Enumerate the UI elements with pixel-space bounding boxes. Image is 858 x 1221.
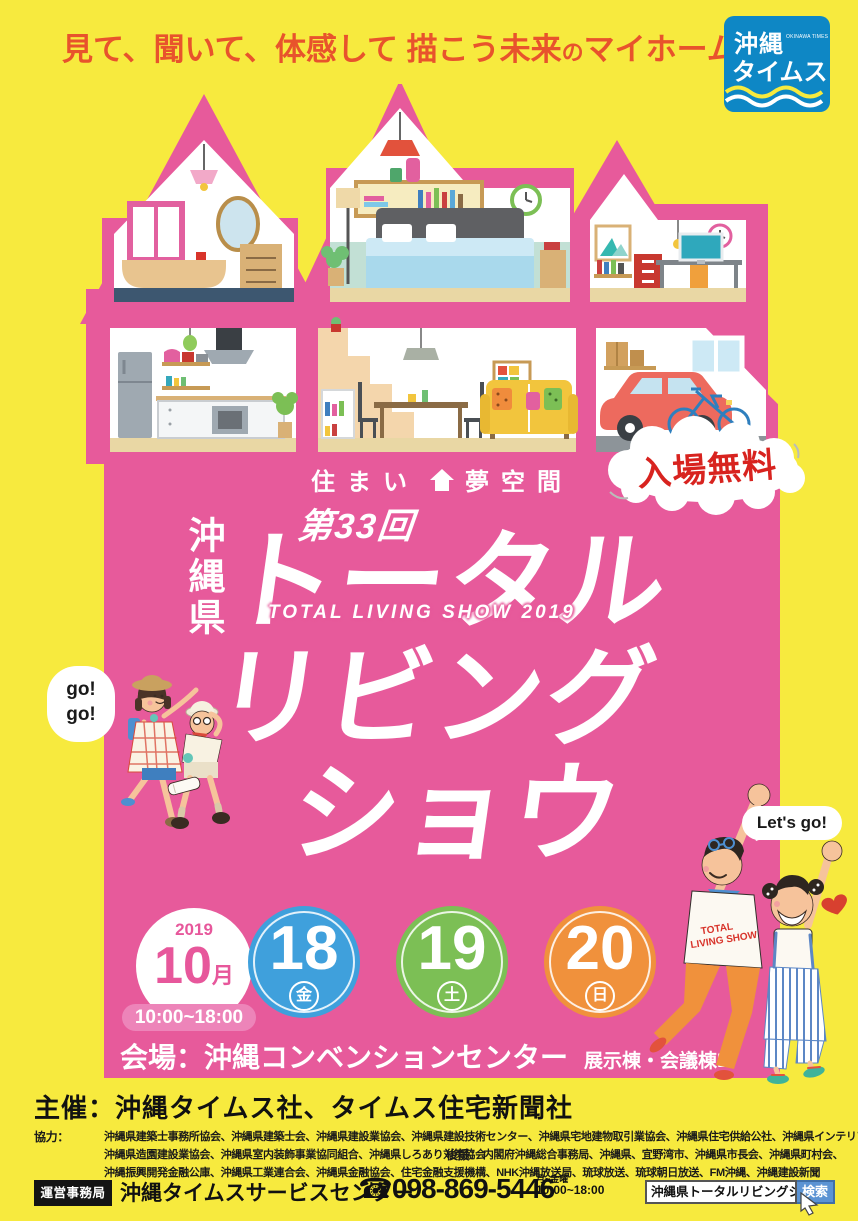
range-hood-icon [216,328,242,350]
venue-name: 会場：沖縄コンベンションセンター [120,1036,568,1076]
bedroom [321,108,570,302]
month-number: 10 [154,937,212,995]
dining-table [374,402,468,408]
weekday-label: 日 [585,981,615,1011]
cooperation-line2: 沖縄県造園建設業協会、沖縄県室内装飾事業協同組合、沖縄県しろあり対策協会 [104,1146,486,1162]
living-floor [318,438,576,452]
phone-number: ☎098-869-5446 [358,1172,554,1205]
pants [654,963,720,1045]
weekday-label: 土 [437,981,467,1011]
month-unit: 月 [212,963,234,988]
headline-no: の [562,40,584,65]
day-badge-saturday: 19 土 [396,906,508,1018]
logo-line2: タイムス [732,52,828,87]
pendant-lamp-icon [403,348,439,360]
poster: 見て、聞いて、体感して 描こう未来のマイホーム 沖縄 OKINAWA TIMES… [0,0,858,1221]
go-line2: go! [47,703,115,728]
bedroom-floor [330,288,570,302]
kitchen [110,328,298,452]
organizer-line: 主催：沖縄タイムス社、タイムス住宅新聞社 [34,1088,573,1125]
vase-icon [406,158,420,182]
bathtub-icon [122,260,226,288]
headline-part2: マイホーム [584,32,738,67]
mirror-icon [218,198,258,250]
cooperation-label: 協力： [34,1128,69,1145]
house-illustration [78,84,778,464]
logo-subtext: OKINAWA TIMES [786,34,828,40]
nightstand [540,250,566,288]
heart-icon [820,893,850,918]
pot-icon [164,349,180,362]
towel [690,265,708,288]
monitor-icon [680,234,722,260]
study-room [590,174,746,302]
search-input[interactable]: 沖縄県トータルリビングショウ2019 [645,1180,797,1204]
floor-lamp [336,188,360,208]
hours-badge: 10:00~18:00 [122,1004,256,1031]
support-label: 後援： [446,1146,481,1163]
cushion [492,388,512,410]
title-line2: リビング [208,644,663,752]
weekday-label: 金 [289,981,319,1011]
study-floor [590,288,746,302]
title-line3: ショウ [284,760,629,868]
day-badge-friday: 18 金 [248,906,360,1018]
free-admission-badge: 入場無料 [596,414,818,518]
cushion [526,392,540,410]
go-line1: go! [47,678,115,703]
tagline-left: 住まい [311,462,419,497]
kitchen-floor [110,438,296,452]
go-go-bubble: go! go! [47,666,115,742]
striped-overalls [764,967,826,1041]
bathroom [114,140,294,302]
man-fist [748,784,770,806]
support-line1: 内閣府沖縄総合事務局、沖縄県、宜野湾市、沖縄県市長会、沖縄県町村会、 [483,1146,843,1163]
girl-fist [822,841,842,861]
pillow [426,224,456,242]
pillow [382,224,412,242]
lets-go-bubble: Let's go! [742,806,842,840]
tagline-right: 夢空間 [465,462,573,497]
box-icon [630,350,644,366]
office-label-badge: 運営事務局 [34,1180,112,1206]
living-room [318,317,578,452]
bathroom-floor [114,288,294,302]
phone-hours-time: 10:00~18:00 [536,1184,604,1198]
support-group: 後援： 内閣府沖縄総合事務局、沖縄県、宜野湾市、沖縄県市長会、沖縄県町村会、 [446,1146,843,1163]
cursor-icon [800,1192,820,1216]
title-subtitle-en: TOTAL LIVING SHOW 2019 [268,602,576,624]
headline: 見て、聞いて、体感して 描こう未来のマイホーム [62,24,738,69]
home-icon [429,468,455,492]
cooperation-line1: 沖縄県建築士事務所協会、沖縄県建築士会、沖縄県建設業協会、沖縄県建設技術センター… [104,1128,858,1144]
phone-hours: 月~金曜 10:00~18:00 [536,1174,604,1198]
cushion [544,388,562,410]
headline-part1: 見て、聞いて、体感して 描こう未来 [62,32,562,67]
